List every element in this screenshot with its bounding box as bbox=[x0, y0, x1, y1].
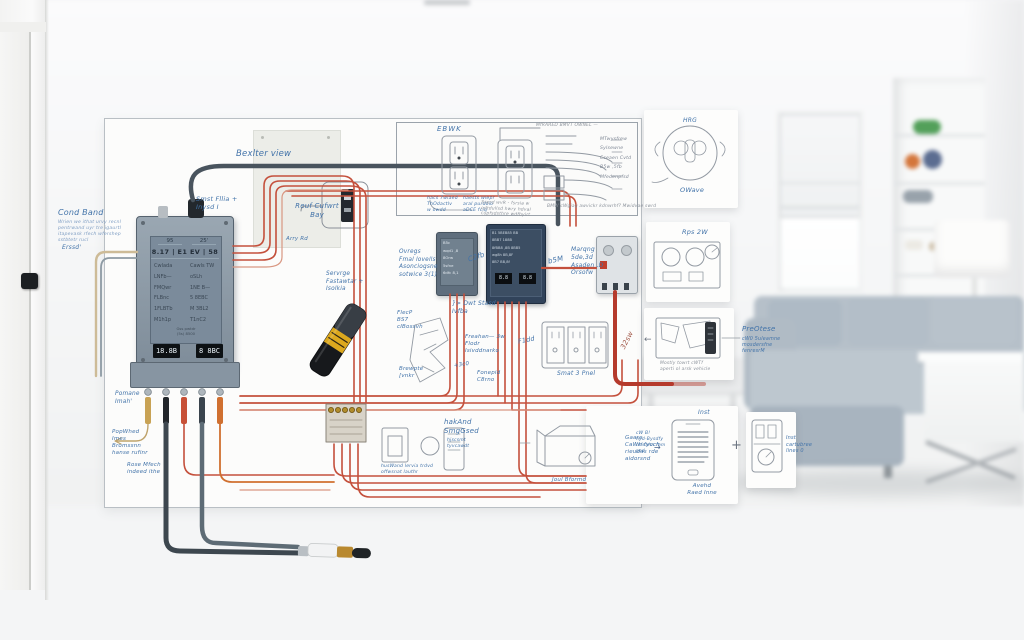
note-jool: Joul Bformd bbox=[552, 477, 586, 484]
panel-header-left: 95 bbox=[158, 238, 182, 245]
panel-footnote: Gss pwtdr (5s) 8500 bbox=[156, 326, 216, 337]
note-pomane: Pomane Imah' bbox=[115, 391, 140, 406]
sofa-cushion bbox=[848, 298, 928, 346]
lamp-shade bbox=[934, 220, 1010, 278]
note-cond-band-body: Wrien we ithat urvy recnl pentrwand uyr … bbox=[58, 220, 121, 244]
note-marqng: Marqng 5de,3d Asaden ,D Orsofw bbox=[571, 246, 603, 277]
small-module-rows: B5c wqd1 ,8 8Orw 5sfne 6dfc 8,1 bbox=[443, 239, 459, 277]
note-freshen: Freahan— 3w Flodr Isivddnarko bbox=[465, 334, 505, 355]
note-serverge: Servrge Fastawtar + Isolkia bbox=[326, 271, 364, 294]
shelf bbox=[893, 134, 985, 137]
beige-panel bbox=[253, 130, 341, 248]
floor bbox=[0, 503, 1024, 640]
note-erssd: Erssd' bbox=[62, 244, 81, 252]
panel-corner-screw bbox=[141, 221, 145, 225]
door-edge bbox=[29, 30, 31, 590]
note-husband: husWand lervia trdvd offwsnat lauthr bbox=[381, 464, 433, 476]
note-outlet-3: Sserd wvR - fsrsia w odtdullsd hwry hdva… bbox=[481, 200, 532, 219]
note-card1-caption: OWave bbox=[680, 186, 704, 194]
note-smart-panel: Smat 3 Pnel bbox=[557, 370, 595, 378]
door-slab bbox=[0, 30, 30, 590]
note-hakand-title: hakAnd SmgGsed bbox=[444, 418, 479, 436]
note-hakand-sub: hjscsmt tyvcawdt bbox=[447, 438, 469, 450]
note-floorplan-caption: Mostly towrt cWTf aperti ol arsk vehicle bbox=[660, 361, 710, 372]
note-fan-title: MfRARED BMVT OWNEL — bbox=[536, 123, 598, 129]
large-module-rows: B1 5BEB85 BB 8BB7 188B 8fBB8 ,8B 8BB5 wg… bbox=[492, 230, 520, 267]
note-inst-title: Inst bbox=[698, 409, 710, 417]
ceiling-vent bbox=[424, 0, 470, 5]
decor-orange bbox=[905, 154, 920, 169]
shelf bbox=[893, 182, 985, 185]
decor-green bbox=[913, 120, 941, 134]
panel-screw bbox=[261, 136, 264, 139]
large-module-window-right: 8.8 bbox=[519, 273, 536, 284]
note-fleck: FlecP BS7 cIBossvh bbox=[397, 310, 423, 331]
shade-fold bbox=[781, 182, 859, 184]
note-popwhed: PopWhed Imes Bromssnn hanse rufinr bbox=[112, 429, 148, 458]
panel-display-right: 8 8BC bbox=[196, 344, 223, 358]
note-dwt: }> Dwt Stasd Ivfba bbox=[452, 300, 496, 316]
large-module-window-left: 8.8 bbox=[495, 273, 512, 284]
panel-flange bbox=[130, 362, 240, 388]
note-breaker-view: Bexlter view bbox=[236, 149, 291, 160]
note-phone-caption: Avehd Raed Inne bbox=[682, 483, 722, 497]
note-inst-left: cW B! hyd-Bysdfy mfeahn fnm psd bbox=[636, 431, 665, 454]
note-outlet-1: hacs 7wlaed ThOdactlv w owdd bbox=[427, 196, 458, 214]
decor-gray bbox=[903, 190, 933, 203]
shade-fold bbox=[781, 206, 859, 209]
window bbox=[776, 110, 864, 294]
decor-blue bbox=[923, 150, 942, 169]
note-preomar-body: cW0 5uleamne mosdersfne fenresrM bbox=[742, 337, 780, 356]
note-rear-bay: Reuf Cufwrt Bay bbox=[290, 202, 344, 220]
panel-corner-screw bbox=[224, 221, 228, 225]
note-rose-mfech: Rose Mfech indeed ithe bbox=[127, 462, 161, 476]
note-arry-rd: Arry Rd bbox=[286, 236, 308, 243]
decor-white bbox=[905, 240, 923, 250]
note-overgs: Ovregs Fmal lovells Asonciogsne sotwice … bbox=[399, 249, 438, 279]
note-top-title: EBWK bbox=[437, 125, 462, 134]
panel-gland-silver bbox=[158, 206, 168, 218]
sofa-cushion bbox=[932, 296, 1016, 344]
contactor-dial bbox=[621, 245, 632, 256]
panel-rows-left: Cwlada LNFb— FMQwr FLBnc 1FLBTb M1h1p bbox=[154, 261, 173, 326]
table-top bbox=[918, 352, 1024, 362]
note-smst: Smst Fllia + Inysd I bbox=[196, 195, 238, 212]
note-card1-title: HRG bbox=[683, 117, 697, 125]
window-light bbox=[781, 218, 859, 288]
contactor-terminal bbox=[624, 283, 629, 290]
note-fan-note: BMW cWgiag awvickr kdnwrhf? Mwidvae swrd bbox=[547, 204, 656, 210]
panel-rows-right: Cawls TW oSLh 1NE B— 5 8EBC M 3BL2 T1nC2 bbox=[190, 261, 214, 326]
panel-corner-screw bbox=[141, 358, 145, 362]
frame-shadow bbox=[45, 0, 49, 600]
plus-icon: + bbox=[731, 438, 742, 455]
panel-header-right: 25' bbox=[192, 238, 216, 245]
note-fan-labels: MTwysfrew Sylsewne Cseaen Cvtd B5w ,5fb … bbox=[600, 135, 631, 182]
panel-screw bbox=[327, 136, 330, 139]
note-brewpte: Brewpte [vnkr bbox=[399, 366, 423, 380]
note-preomar-title: PreOtese bbox=[742, 325, 776, 334]
arrow-right-icon: → bbox=[654, 443, 661, 453]
table-front bbox=[924, 362, 1024, 442]
contactor-dial bbox=[603, 245, 614, 256]
contactor-terminal bbox=[613, 283, 618, 290]
window-shade bbox=[781, 116, 859, 216]
note-card2-title: Rps 2W bbox=[682, 228, 708, 236]
screenshot-root: 95 25' 8.17 | E1 EV | 58 Cwlada LNFb— FM… bbox=[0, 0, 1024, 640]
note-cond-band-title: Cond Band bbox=[58, 208, 104, 218]
contactor-terminal bbox=[602, 283, 607, 290]
panel-corner-screw bbox=[224, 358, 228, 362]
door-lintel bbox=[0, 22, 46, 32]
arrow-left-icon: ← bbox=[644, 335, 652, 347]
door-handle bbox=[21, 273, 38, 289]
panel-breaker-row: 8.17 | E1 EV | 58 bbox=[151, 248, 219, 259]
door bbox=[0, 0, 52, 640]
panel-display-left: 18.8B bbox=[153, 344, 180, 358]
note-fonepid: Fonepid C8rno bbox=[477, 370, 500, 384]
note-lower-right: Inst cartubree lines 0 bbox=[786, 435, 812, 455]
